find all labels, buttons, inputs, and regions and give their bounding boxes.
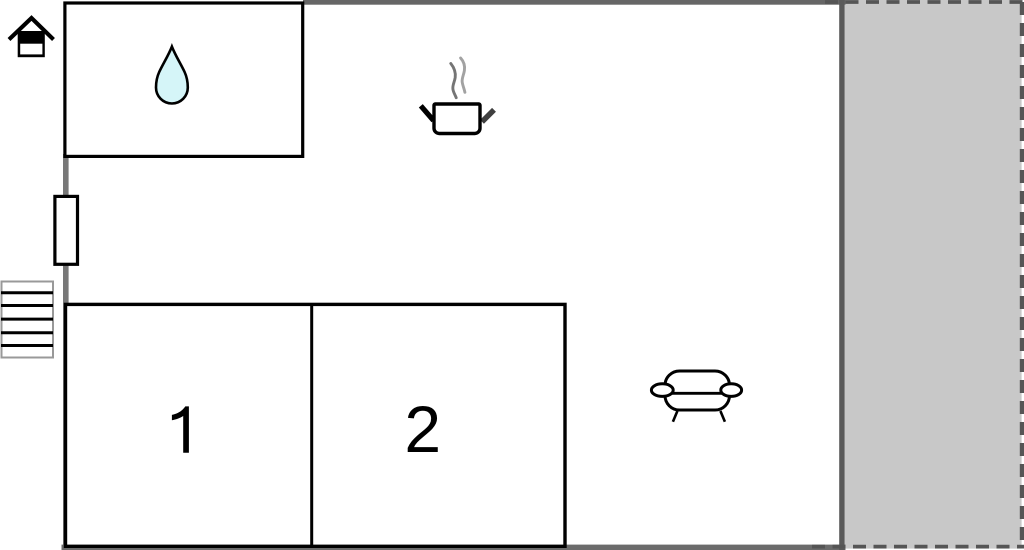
svg-text:2: 2	[404, 392, 441, 466]
